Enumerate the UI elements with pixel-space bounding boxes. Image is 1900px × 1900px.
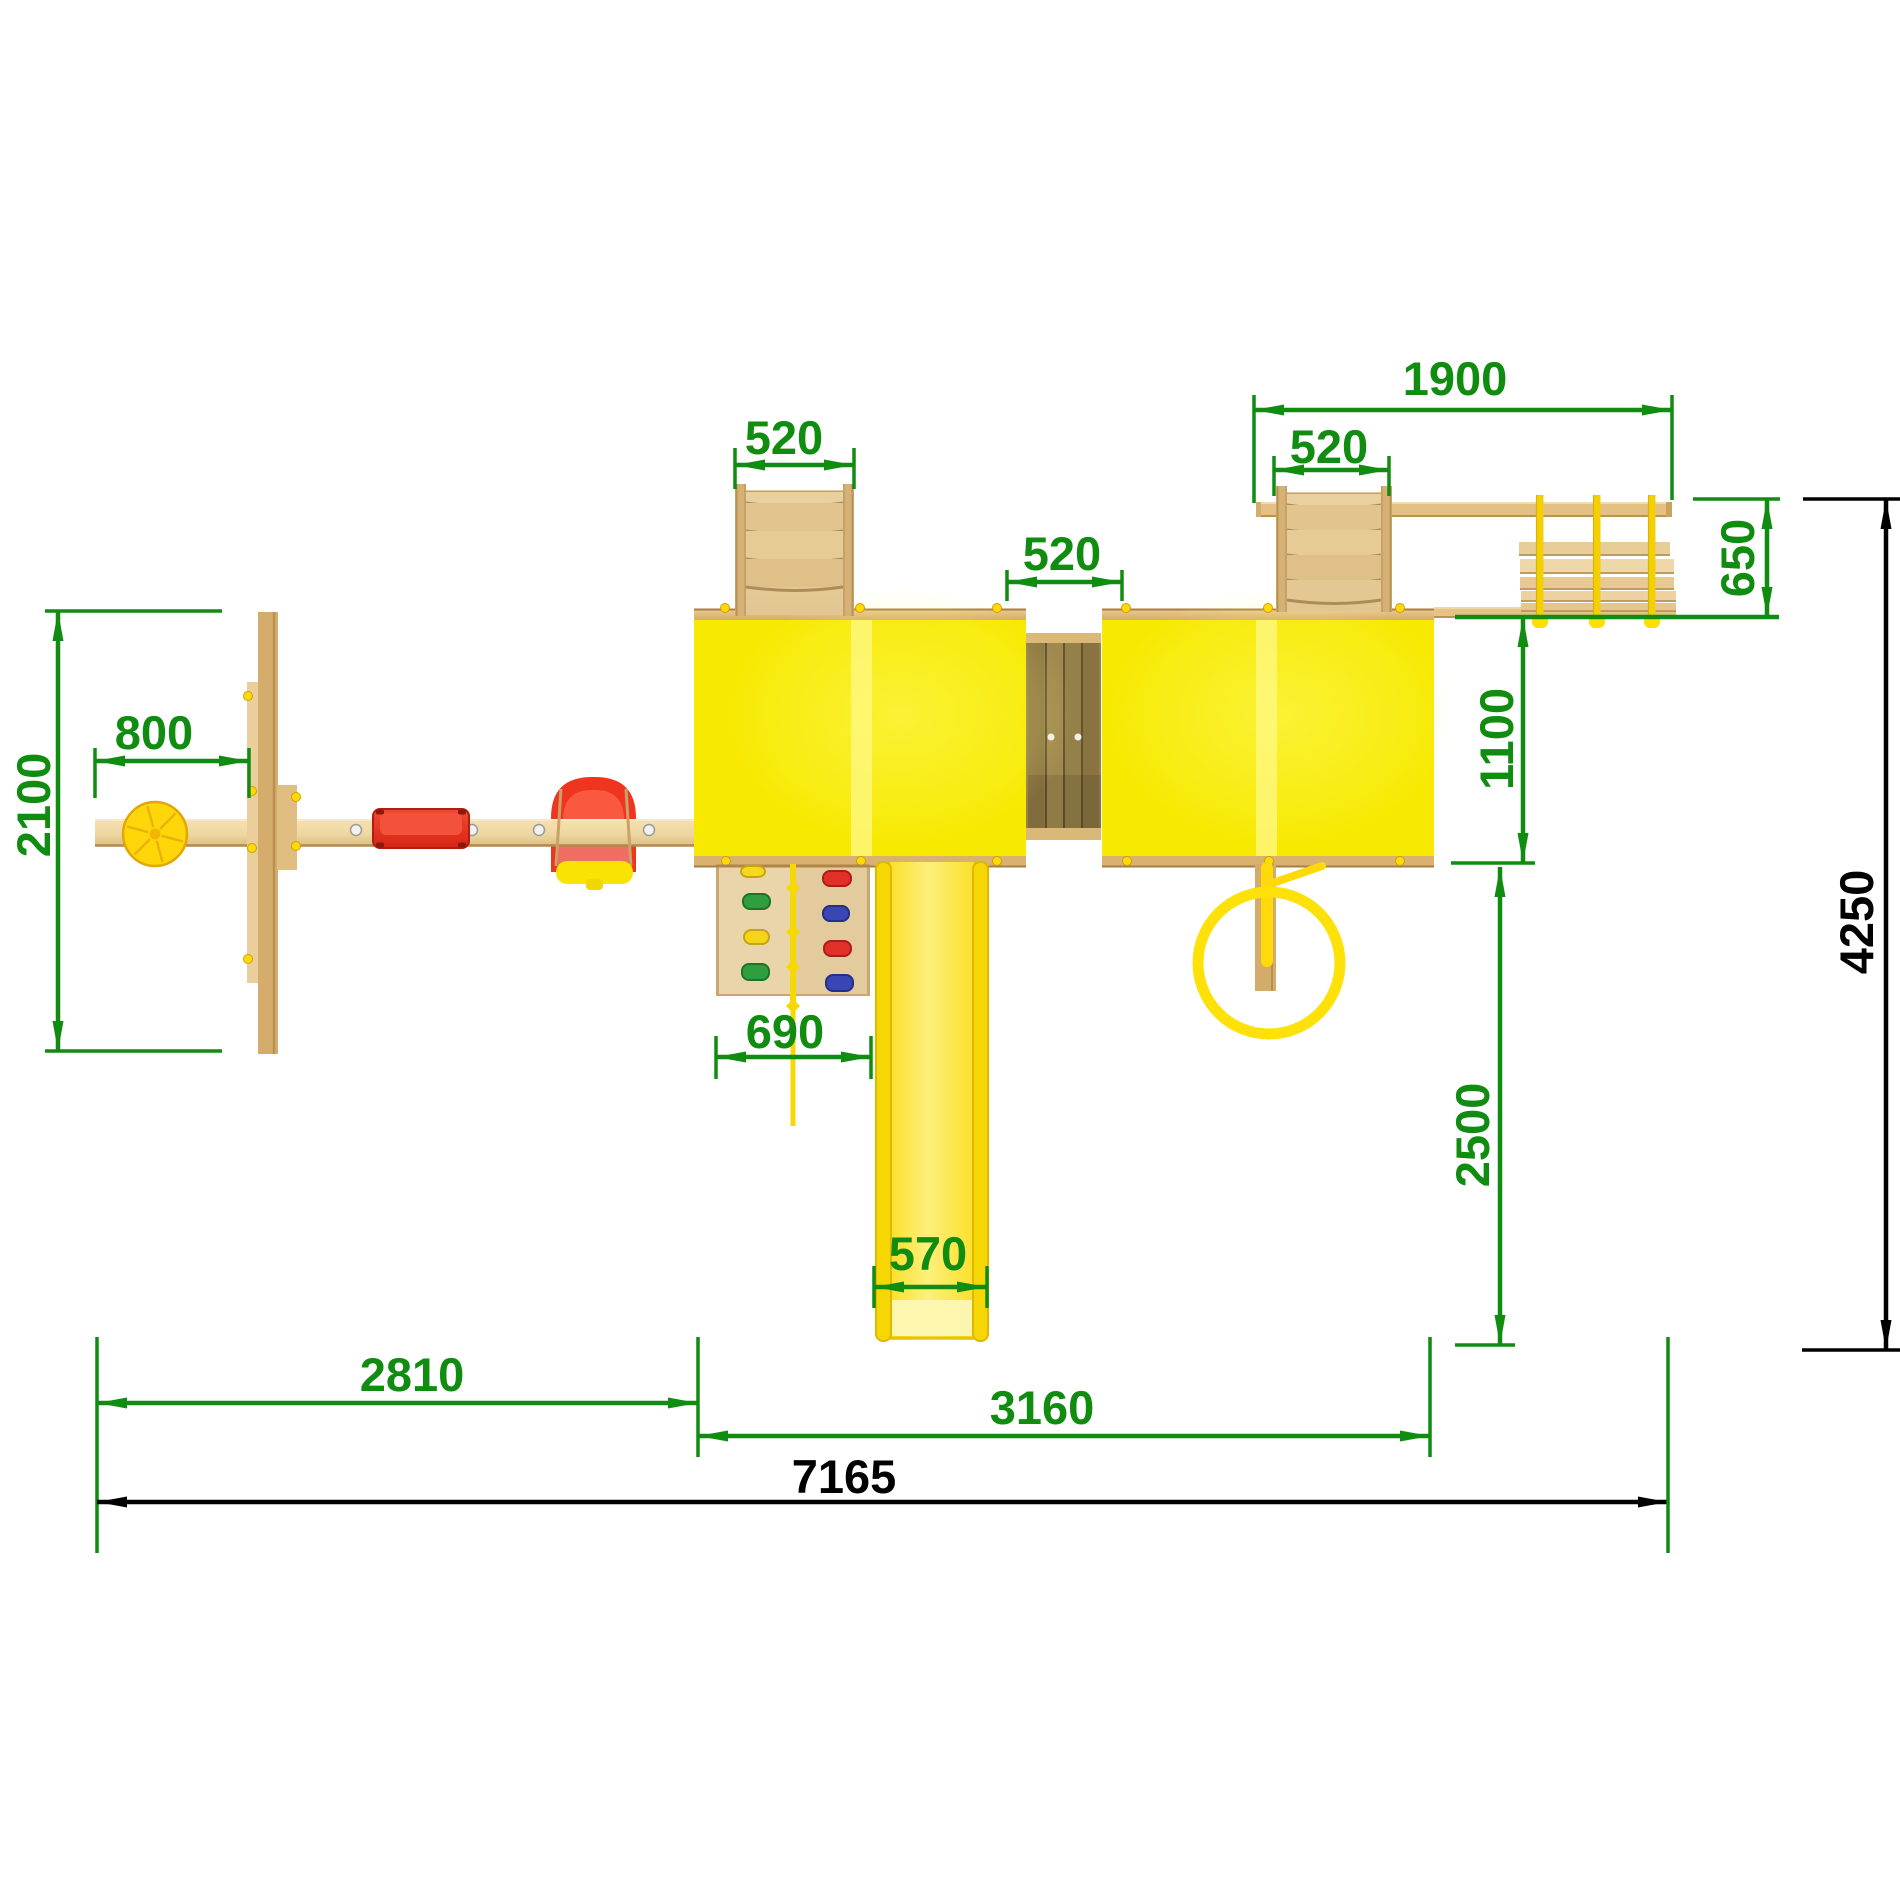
svg-text:3160: 3160: [990, 1381, 1095, 1434]
svg-text:520: 520: [745, 411, 823, 464]
svg-text:2100: 2100: [7, 753, 60, 858]
svg-text:520: 520: [1023, 527, 1101, 580]
svg-text:570: 570: [889, 1227, 967, 1280]
svg-text:7165: 7165: [792, 1450, 897, 1503]
svg-text:4250: 4250: [1830, 870, 1883, 975]
svg-text:650: 650: [1711, 519, 1764, 597]
svg-text:520: 520: [1290, 420, 1368, 473]
svg-text:1100: 1100: [1470, 688, 1523, 790]
svg-text:1900: 1900: [1403, 352, 1508, 405]
svg-text:690: 690: [746, 1005, 824, 1058]
svg-text:2500: 2500: [1446, 1083, 1499, 1188]
svg-text:800: 800: [115, 706, 193, 759]
svg-text:2810: 2810: [360, 1348, 465, 1401]
